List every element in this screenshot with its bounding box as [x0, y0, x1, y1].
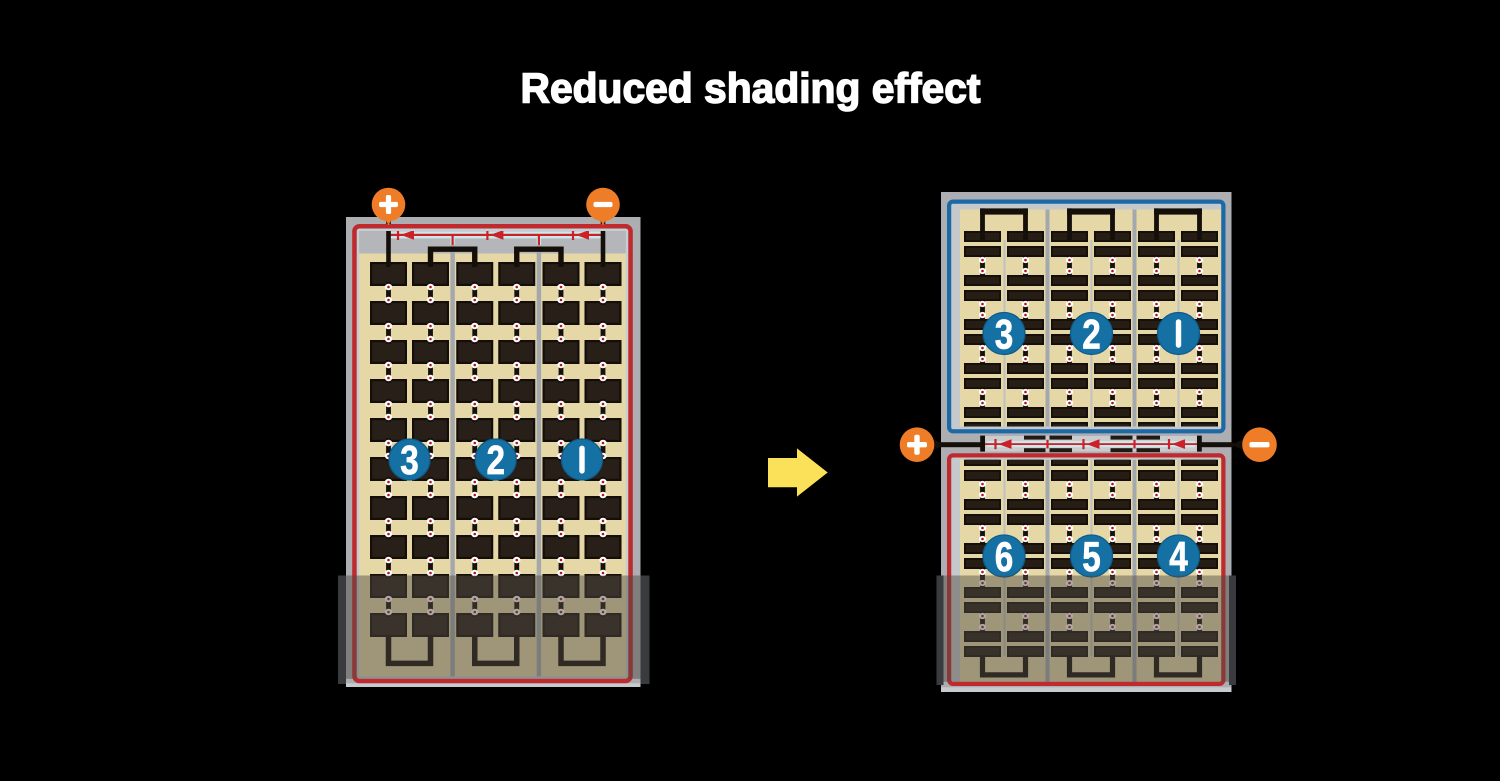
svg-text:2: 2 — [487, 437, 506, 483]
svg-text:4: 4 — [1169, 533, 1188, 580]
svg-text:2: 2 — [1082, 311, 1101, 358]
svg-text:5: 5 — [1082, 533, 1101, 580]
svg-text:3: 3 — [400, 437, 419, 483]
svg-text:3: 3 — [995, 311, 1014, 358]
svg-text:Reduced shading effect: Reduced shading effect — [521, 64, 981, 111]
svg-text:6: 6 — [995, 533, 1014, 580]
